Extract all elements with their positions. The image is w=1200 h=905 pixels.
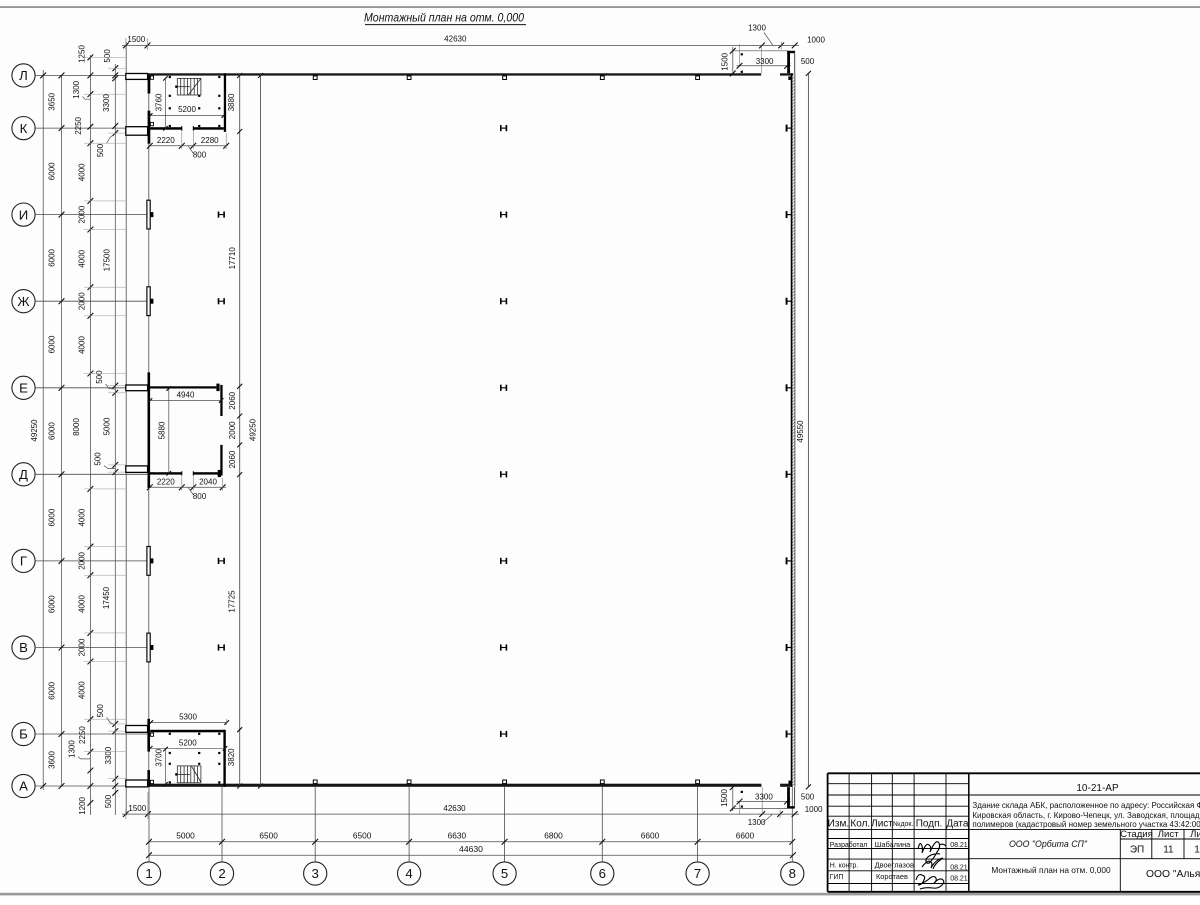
svg-text:Шабалина: Шабалина xyxy=(875,840,912,849)
svg-text:17725: 17725 xyxy=(228,590,237,613)
svg-text:500: 500 xyxy=(801,57,815,66)
svg-text:Монтажный план на отм. 0,000: Монтажный план на отм. 0,000 xyxy=(364,11,524,25)
svg-text:42630: 42630 xyxy=(444,35,467,44)
svg-text:4000: 4000 xyxy=(78,336,87,354)
svg-text:Ли: Ли xyxy=(1190,829,1200,840)
svg-text:Коротаев: Коротаев xyxy=(876,872,908,881)
svg-text:500: 500 xyxy=(94,452,103,466)
svg-text:6000: 6000 xyxy=(48,335,57,353)
svg-text:1000: 1000 xyxy=(807,35,825,44)
svg-text:Лист: Лист xyxy=(871,818,893,829)
svg-text:Кировская область, г. Кирово-Ч: Кировская область, г. Кирово-Чепецк, ул.… xyxy=(972,811,1200,820)
svg-text:42630: 42630 xyxy=(443,804,466,813)
svg-text:500: 500 xyxy=(96,143,105,157)
svg-text:Двоеглазов: Двоеглазов xyxy=(875,861,914,870)
svg-text:Стадия: Стадия xyxy=(1120,829,1153,840)
svg-text:1: 1 xyxy=(145,866,152,881)
svg-text:3300: 3300 xyxy=(102,94,111,112)
svg-text:2040: 2040 xyxy=(199,478,217,487)
svg-text:49250: 49250 xyxy=(30,419,39,442)
svg-text:Изм.: Изм. xyxy=(828,818,849,829)
svg-text:Дата: Дата xyxy=(946,818,969,829)
svg-text:6630: 6630 xyxy=(448,830,467,840)
svg-text:ООО "Орбита СП": ООО "Орбита СП" xyxy=(1009,839,1088,849)
svg-text:1000: 1000 xyxy=(805,805,823,814)
svg-text:500: 500 xyxy=(801,793,815,802)
svg-text:3880: 3880 xyxy=(227,93,236,111)
svg-text:4000: 4000 xyxy=(78,681,87,699)
svg-text:В: В xyxy=(19,640,28,655)
svg-text:4000: 4000 xyxy=(78,163,87,181)
svg-text:5: 5 xyxy=(501,866,508,881)
svg-text:800: 800 xyxy=(193,492,207,501)
svg-text:5300: 5300 xyxy=(179,713,197,722)
svg-text:Здание склада АБК, расположенн: Здание склада АБК, расположенное по адре… xyxy=(972,801,1200,810)
svg-text:2000: 2000 xyxy=(78,638,87,656)
svg-text:800: 800 xyxy=(193,150,207,159)
svg-text:5200: 5200 xyxy=(178,105,196,114)
svg-text:1300: 1300 xyxy=(748,24,766,33)
svg-text:2250: 2250 xyxy=(78,726,87,744)
svg-text:3650: 3650 xyxy=(48,92,57,110)
svg-text:2000: 2000 xyxy=(78,205,87,223)
svg-text:49250: 49250 xyxy=(249,418,258,441)
svg-text:08.21: 08.21 xyxy=(950,875,968,882)
svg-text:3300: 3300 xyxy=(755,793,773,802)
svg-text:49550: 49550 xyxy=(796,420,805,443)
svg-text:Л: Л xyxy=(19,68,28,83)
svg-text:7: 7 xyxy=(694,866,701,881)
svg-text:6: 6 xyxy=(599,866,606,881)
svg-text:1500: 1500 xyxy=(720,789,729,807)
svg-text:3820: 3820 xyxy=(227,748,236,766)
svg-text:Подп.: Подп. xyxy=(916,818,943,829)
svg-text:1300: 1300 xyxy=(72,80,81,98)
svg-text:1300: 1300 xyxy=(68,740,77,758)
svg-text:4000: 4000 xyxy=(78,508,87,526)
svg-text:К: К xyxy=(20,121,28,136)
svg-text:ООО "Альянс: ООО "Альянс xyxy=(1146,869,1200,880)
svg-text:Б: Б xyxy=(19,727,28,742)
svg-text:Е: Е xyxy=(19,381,28,396)
svg-text:500: 500 xyxy=(104,794,113,808)
svg-text:ЭП: ЭП xyxy=(1130,845,1144,856)
svg-text:500: 500 xyxy=(95,370,104,384)
svg-text:А: А xyxy=(19,779,28,794)
svg-text:1500: 1500 xyxy=(721,52,730,70)
svg-text:8: 8 xyxy=(789,866,796,881)
svg-text:6500: 6500 xyxy=(353,830,372,840)
svg-text:3700: 3700 xyxy=(155,748,164,766)
svg-text:2000: 2000 xyxy=(228,421,237,439)
svg-text:8000: 8000 xyxy=(72,418,81,436)
svg-text:6000: 6000 xyxy=(48,508,57,526)
svg-text:1250: 1250 xyxy=(78,45,87,63)
svg-text:1500: 1500 xyxy=(127,35,145,44)
svg-text:Н. контр.: Н. контр. xyxy=(830,863,859,870)
svg-text:№док.: №док. xyxy=(893,821,914,828)
svg-text:Кол.: Кол. xyxy=(850,818,870,829)
svg-text:Лист: Лист xyxy=(1158,829,1179,840)
svg-text:1500: 1500 xyxy=(128,804,146,813)
svg-text:6500: 6500 xyxy=(259,830,278,840)
svg-text:3300: 3300 xyxy=(756,57,774,66)
svg-text:2220: 2220 xyxy=(157,136,175,145)
svg-text:И: И xyxy=(19,207,28,222)
svg-text:2000: 2000 xyxy=(78,551,87,569)
svg-text:10-21-АР: 10-21-АР xyxy=(1076,783,1119,794)
svg-text:Г: Г xyxy=(20,554,27,569)
svg-text:6000: 6000 xyxy=(48,422,57,440)
svg-text:Монтажный план на отм. 0,000: Монтажный план на отм. 0,000 xyxy=(991,865,1111,875)
svg-text:6600: 6600 xyxy=(736,830,755,840)
svg-text:4: 4 xyxy=(405,866,412,881)
svg-text:3600: 3600 xyxy=(48,751,57,769)
svg-text:500: 500 xyxy=(103,49,112,63)
svg-text:08.21: 08.21 xyxy=(950,842,968,849)
svg-text:11: 11 xyxy=(1163,845,1174,856)
svg-text:5200: 5200 xyxy=(179,739,197,748)
svg-text:3760: 3760 xyxy=(155,93,164,111)
svg-text:2: 2 xyxy=(218,866,225,881)
svg-text:6600: 6600 xyxy=(641,830,660,840)
svg-text:2060: 2060 xyxy=(228,391,237,409)
svg-text:Ж: Ж xyxy=(17,294,29,309)
svg-text:17500: 17500 xyxy=(103,249,112,272)
svg-text:500: 500 xyxy=(96,704,105,718)
svg-text:Д: Д xyxy=(19,467,28,482)
svg-text:2250: 2250 xyxy=(74,116,83,134)
svg-text:2220: 2220 xyxy=(157,478,175,487)
svg-text:5880: 5880 xyxy=(157,421,166,439)
svg-text:5000: 5000 xyxy=(103,417,112,435)
svg-text:3: 3 xyxy=(312,866,319,881)
svg-text:2000: 2000 xyxy=(78,292,87,310)
svg-text:44630: 44630 xyxy=(459,844,483,854)
svg-text:6800: 6800 xyxy=(544,830,563,840)
svg-text:4940: 4940 xyxy=(177,391,195,400)
svg-text:6000: 6000 xyxy=(48,681,57,699)
svg-text:4000: 4000 xyxy=(78,249,87,267)
svg-text:1: 1 xyxy=(1194,845,1200,856)
svg-text:5000: 5000 xyxy=(176,830,195,840)
svg-text:4000: 4000 xyxy=(78,595,87,613)
svg-text:17710: 17710 xyxy=(228,247,237,270)
svg-text:ГИП: ГИП xyxy=(830,874,844,881)
svg-text:6000: 6000 xyxy=(48,248,57,266)
svg-text:2280: 2280 xyxy=(201,136,219,145)
svg-text:6000: 6000 xyxy=(48,162,57,180)
svg-text:1200: 1200 xyxy=(78,796,87,814)
svg-text:6000: 6000 xyxy=(48,595,57,613)
svg-text:08.21: 08.21 xyxy=(950,865,968,872)
svg-text:17450: 17450 xyxy=(102,586,111,609)
svg-text:2060: 2060 xyxy=(228,450,237,468)
svg-text:Разработал: Разработал xyxy=(830,841,868,849)
svg-text:3300: 3300 xyxy=(104,746,113,764)
